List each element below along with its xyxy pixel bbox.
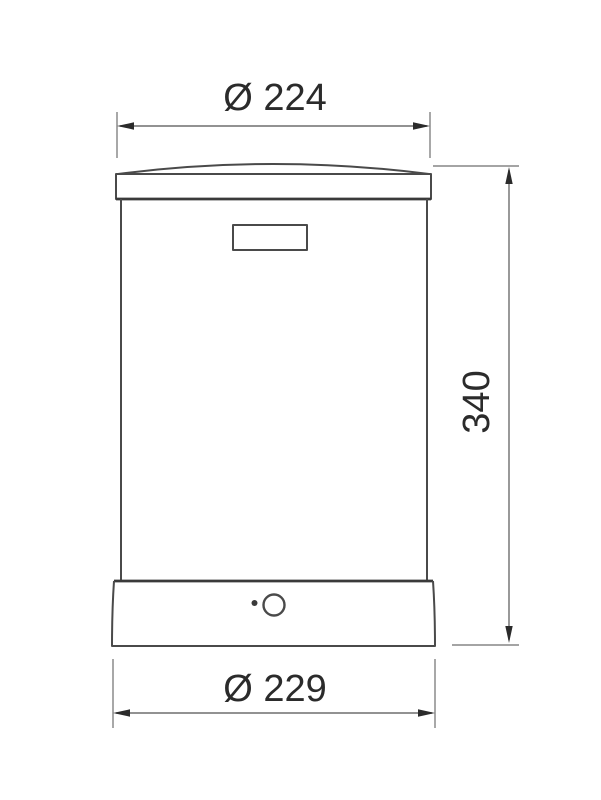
pedal-dot-icon [252, 600, 258, 606]
bottom-dim-arrow-left-icon [113, 709, 130, 716]
bottom-diameter-label: Ø 229 [223, 668, 327, 710]
pedal-button-circle [264, 595, 285, 616]
lid-band [116, 174, 431, 199]
height-dim-arrow-bottom-icon [505, 626, 512, 643]
height-label: 340 [456, 370, 498, 433]
lid-dome-arc [118, 164, 429, 174]
handle-recess [233, 225, 307, 250]
height-dimension: 340 [433, 166, 519, 645]
drawing-sheet: Ø 224 [0, 0, 601, 800]
top-dim-arrow-right-icon [413, 122, 430, 129]
technical-drawing: Ø 224 [0, 0, 601, 800]
top-diameter-dimension: Ø 224 [117, 77, 430, 158]
top-dim-arrow-left-icon [117, 122, 134, 129]
bottom-dim-arrow-right-icon [418, 709, 435, 716]
base-band [112, 581, 435, 646]
bottom-diameter-dimension: Ø 229 [113, 659, 435, 728]
bin-outline [112, 164, 435, 646]
top-diameter-label: Ø 224 [223, 77, 327, 119]
height-dim-arrow-top-icon [505, 167, 512, 184]
